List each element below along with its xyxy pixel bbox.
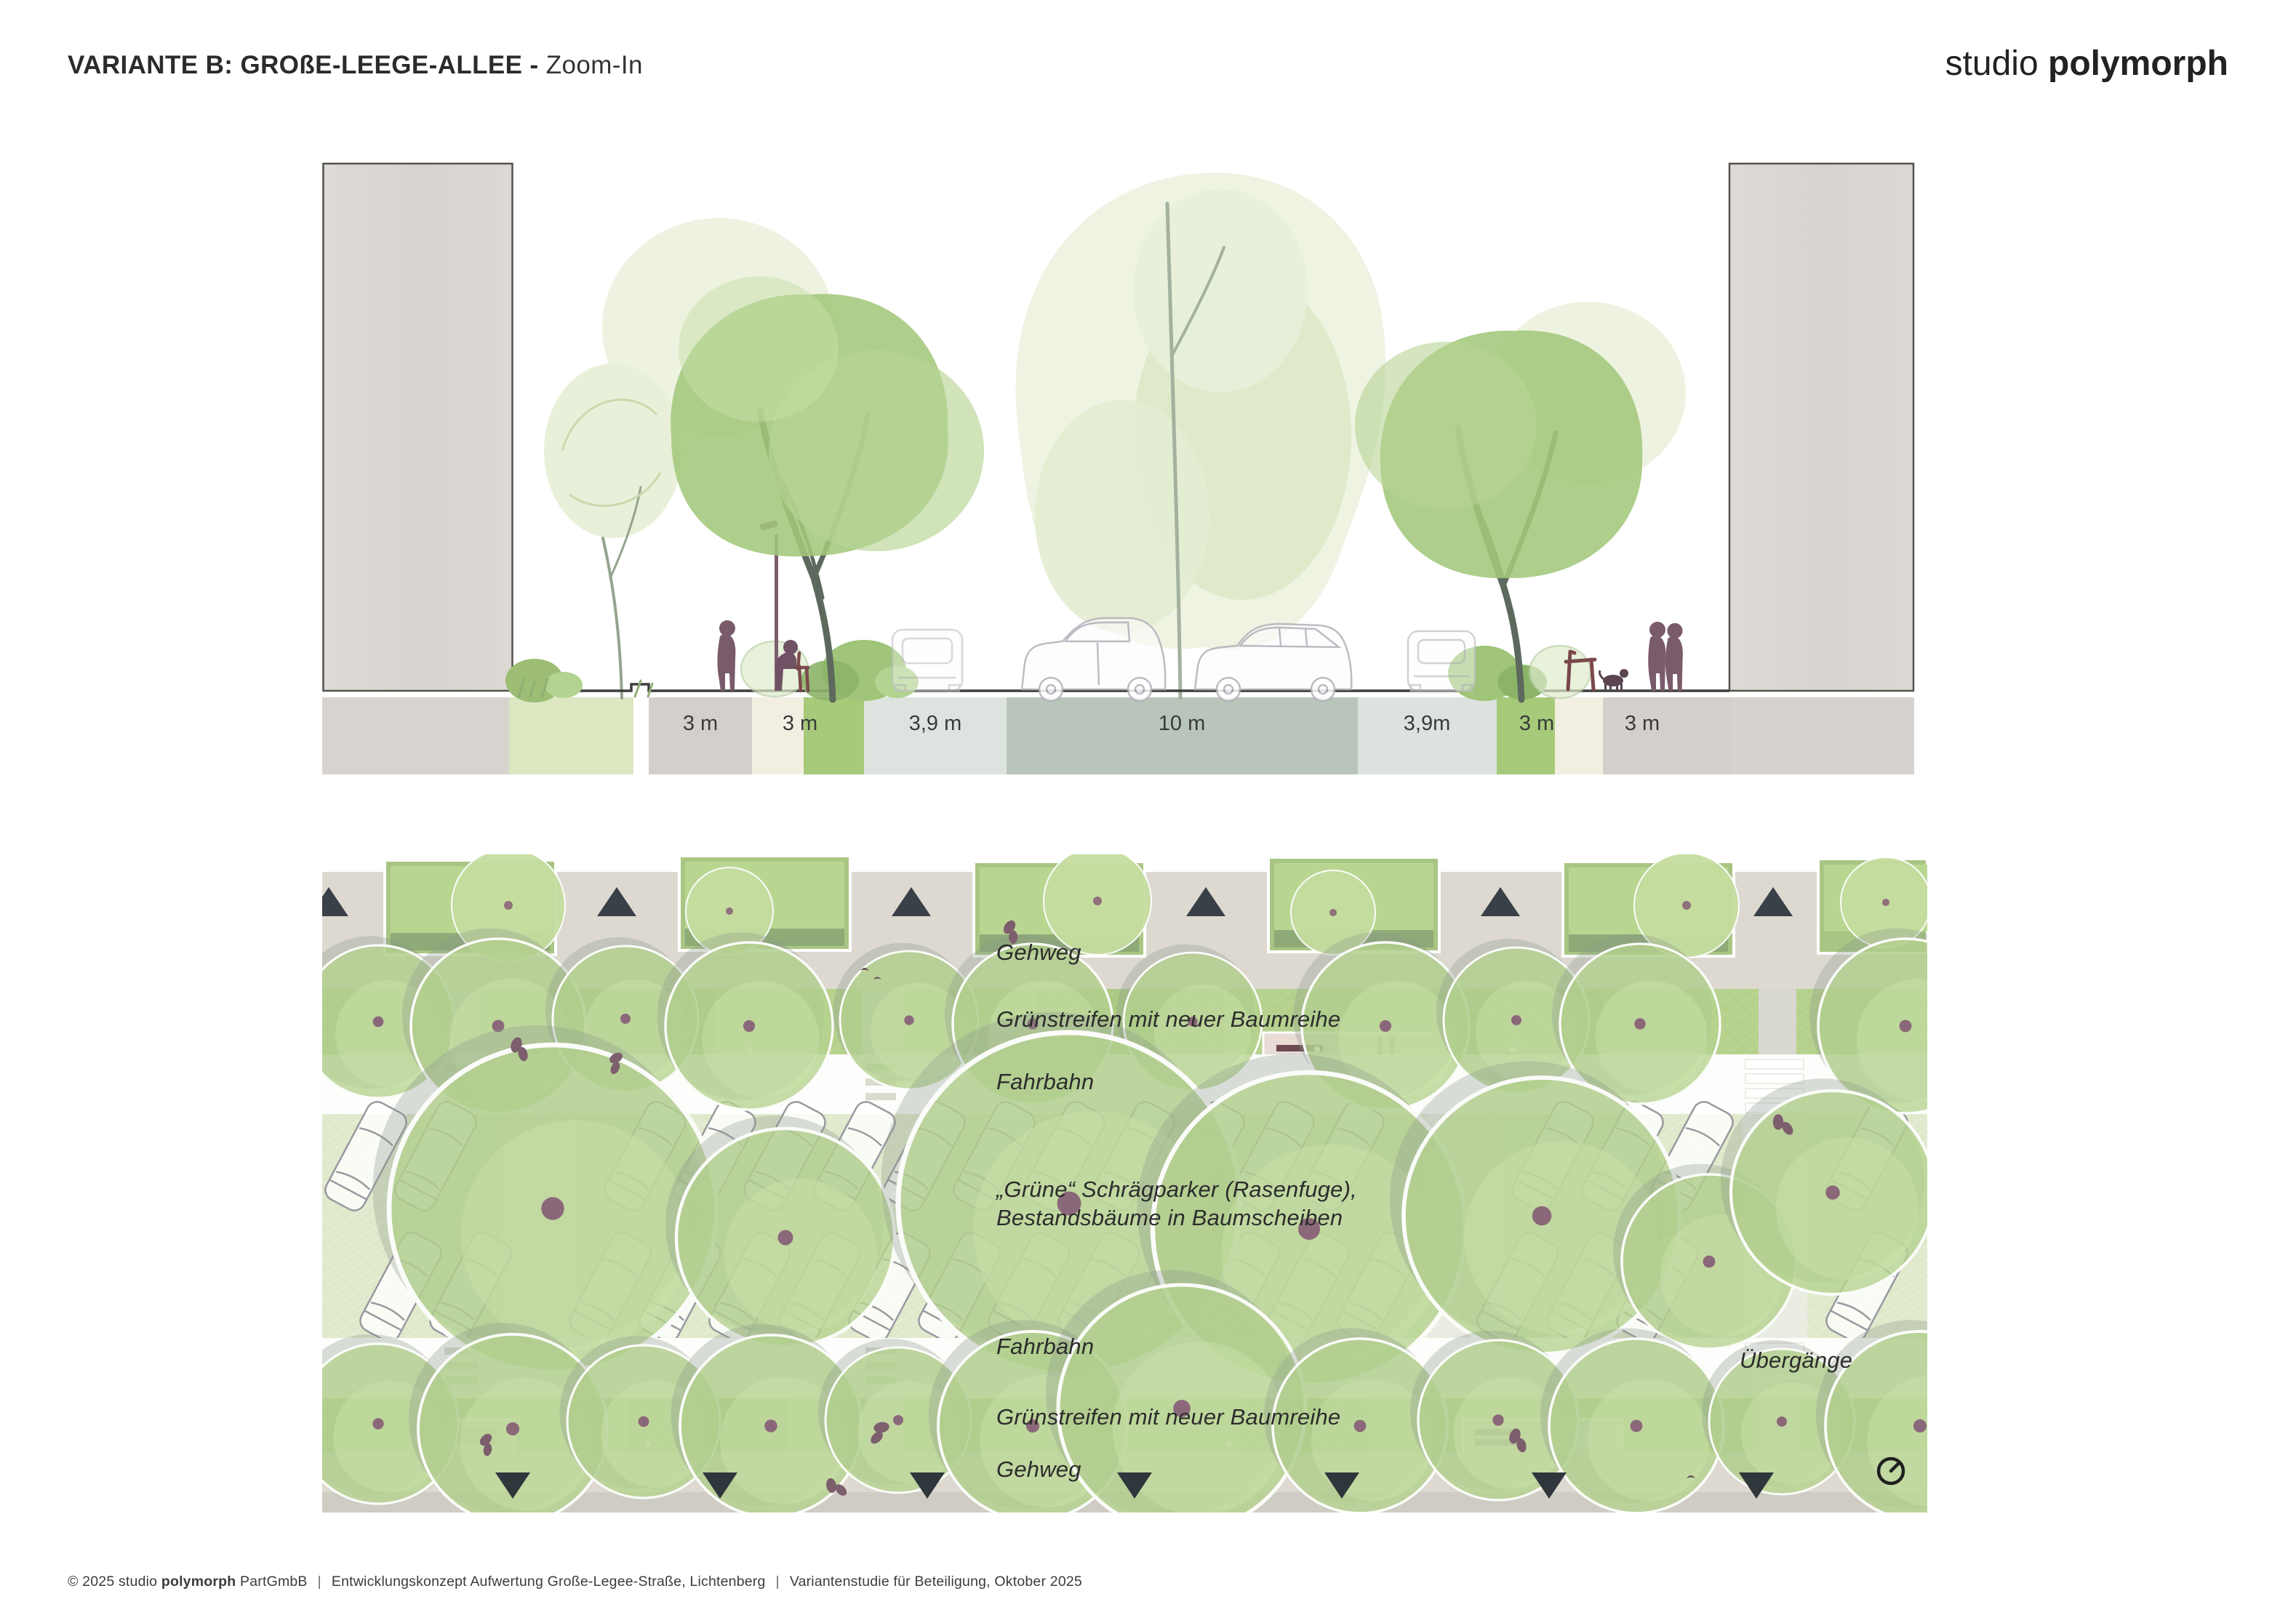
dim-label-sidewalk-left: 3 m	[683, 712, 718, 736]
page-title-bold: VARIANTE B: GROßE-LEEGE-ALLEE -	[68, 51, 546, 79]
cross-section-drawing	[322, 109, 1922, 774]
footer-separator-1: |	[318, 1574, 321, 1590]
building-right	[1729, 164, 1913, 691]
building-left	[324, 164, 513, 691]
dim-label-greenstrip-right: 3 m	[1519, 712, 1554, 736]
footer-copyright-post: PartGmbB	[236, 1574, 307, 1590]
label-schraegparker-line2: Bestandsbäume in Baumscheiben	[996, 1205, 1343, 1231]
studio-logo: studio polymorph	[1945, 44, 2228, 84]
label-schraegparker-line1: „Grüne“ Schrägparker (Rasenfuge),	[996, 1177, 1357, 1203]
dim-label-parking-right: 3,9m	[1404, 712, 1450, 736]
sheet: VARIANTE B: GROßE-LEEGE-ALLEE - Zoom-In …	[0, 0, 2296, 1623]
dim-label-roadway: 10 m	[1159, 712, 1205, 736]
label-fahrbahn-bottom: Fahrbahn	[996, 1334, 1094, 1360]
label-uebergaenge: Übergänge	[1740, 1347, 1852, 1374]
footer-copyright-pre: © 2025 studio	[68, 1574, 161, 1590]
section-strips	[322, 697, 1914, 774]
footer-credits: © 2025 studio polymorph PartGmbB|Entwick…	[68, 1574, 1082, 1590]
pedestrian-pair	[1648, 622, 1683, 691]
label-gruenstreifen-bottom: Grünstreifen mit neuer Baumreihe	[996, 1404, 1340, 1430]
car-rear-left	[892, 630, 962, 691]
tree-right	[1355, 331, 1642, 700]
dog	[1600, 669, 1628, 691]
label-gehweg-bottom: Gehweg	[996, 1456, 1081, 1483]
label-gruenstreifen-top: Grünstreifen mit neuer Baumreihe	[996, 1006, 1340, 1033]
page-title: VARIANTE B: GROßE-LEEGE-ALLEE - Zoom-In	[68, 51, 643, 80]
car-hatchback	[1022, 618, 1165, 701]
footer-project: Entwicklungskonzept Aufwertung Große-Leg…	[332, 1574, 766, 1590]
footer-separator-2: |	[776, 1574, 780, 1590]
dim-label-parking-left: 3,9 m	[909, 712, 962, 736]
logo-bold: polymorph	[2048, 44, 2228, 83]
dim-label-sidewalk-right: 3 m	[1625, 712, 1660, 736]
footer-copyright-bold: polymorph	[161, 1574, 236, 1590]
car-rear-right	[1408, 631, 1475, 691]
page-title-regular: Zoom-In	[546, 51, 643, 79]
dim-label-greenstrip-left: 3 m	[783, 712, 817, 736]
logo-light: studio	[1945, 44, 2048, 83]
label-gehweg-top: Gehweg	[996, 939, 1081, 966]
footer-study: Variantenstudie für Beteiligung, Oktober…	[790, 1574, 1082, 1590]
label-fahrbahn-top: Fahrbahn	[996, 1069, 1094, 1095]
pedestrian-standing	[717, 620, 735, 691]
